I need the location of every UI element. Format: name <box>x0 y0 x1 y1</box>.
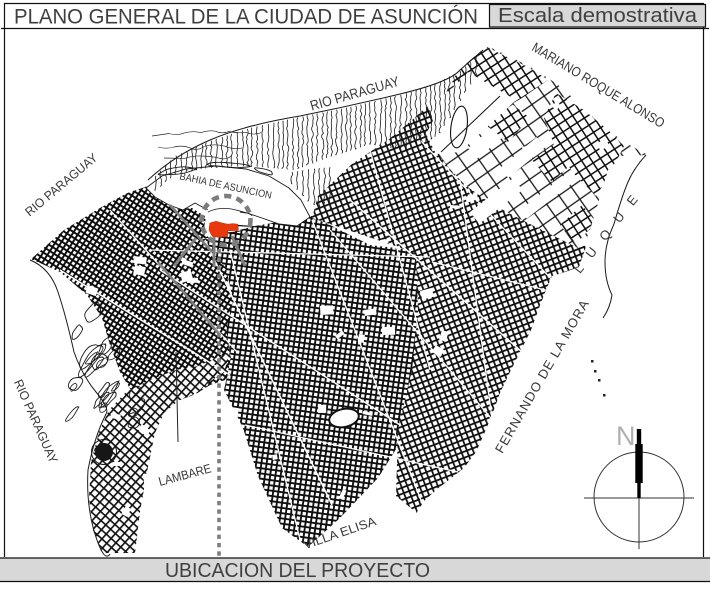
svg-text:N: N <box>616 421 636 451</box>
svg-text:Escala demostrativa: Escala demostrativa <box>498 5 698 27</box>
svg-text:UBICACION DEL PROYECTO: UBICACION DEL PROYECTO <box>165 560 430 582</box>
svg-text:PLANO GENERAL DE LA CIUDAD DE: PLANO GENERAL DE LA CIUDAD DE ASUNCIÓN <box>14 6 478 29</box>
